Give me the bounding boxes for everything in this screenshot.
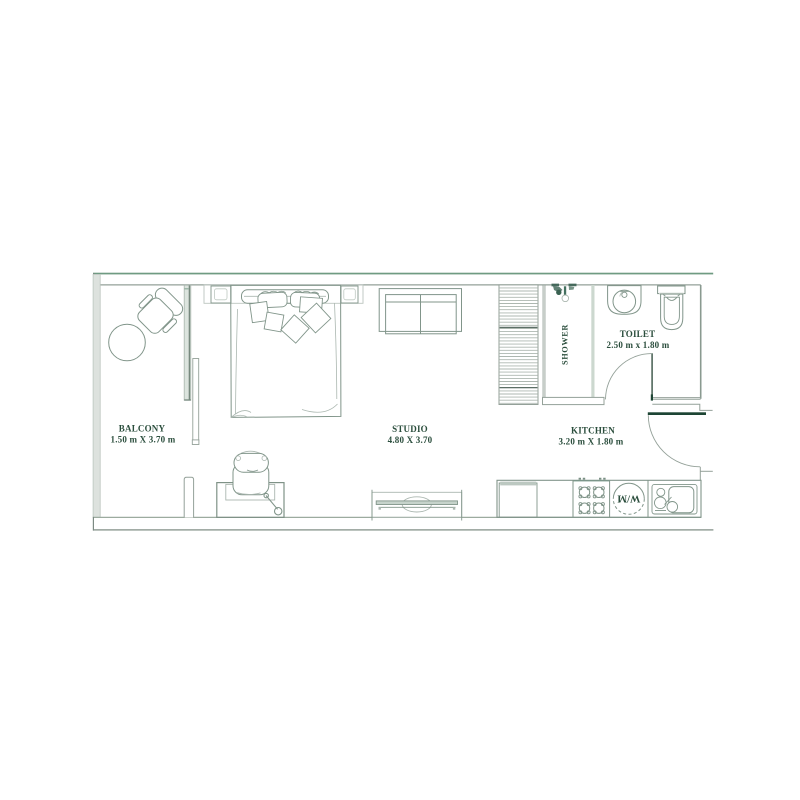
svg-text:STUDIO: STUDIO xyxy=(392,424,428,434)
svg-text:KITCHEN: KITCHEN xyxy=(571,426,615,436)
svg-text:SHOWER: SHOWER xyxy=(560,324,569,365)
svg-text:BALCONY: BALCONY xyxy=(119,424,166,434)
svg-text:2.50 m x 1.80 m: 2.50 m x 1.80 m xyxy=(607,340,670,350)
svg-text:W/M: W/M xyxy=(617,493,640,504)
svg-text:3.20 m X 1.80 m: 3.20 m X 1.80 m xyxy=(559,437,624,447)
svg-text:1.50 m X 3.70 m: 1.50 m X 3.70 m xyxy=(111,435,176,445)
svg-text:4.80 X 3.70: 4.80 X 3.70 xyxy=(388,435,433,445)
svg-text:TOILET: TOILET xyxy=(620,329,656,339)
